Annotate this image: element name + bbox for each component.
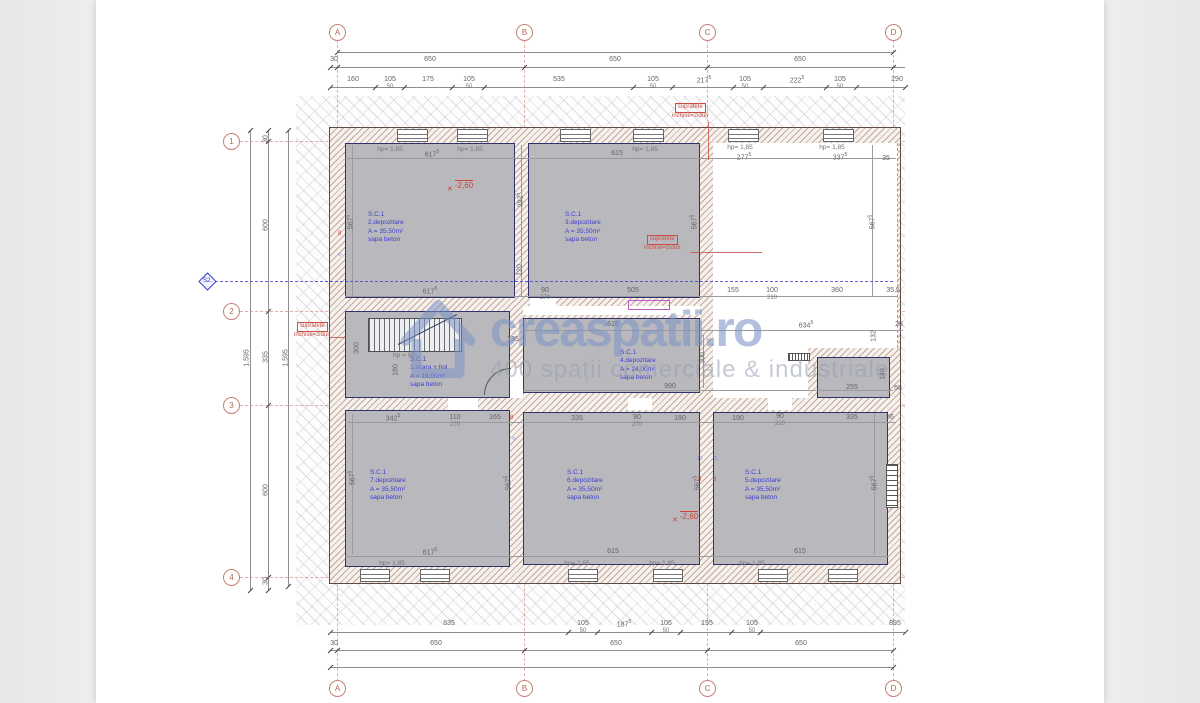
axis-marker-A: A xyxy=(329,680,346,697)
demolition-note: suprafeteinchise=ziduri xyxy=(672,103,709,120)
dim-label: 10550 xyxy=(739,76,751,91)
level-marker: ✕-2,60 xyxy=(672,512,698,521)
dim-line xyxy=(330,650,893,651)
dim-label: 650 xyxy=(610,640,622,648)
note-leader-line xyxy=(690,252,762,253)
demolition-note: suprafeteinchise=ziduri xyxy=(294,322,331,339)
dim-label: 165 xyxy=(489,414,501,422)
dim-label: 5675 xyxy=(503,476,512,490)
dim-label: 1,595 xyxy=(244,349,251,367)
dim-label: 10550 xyxy=(660,620,672,635)
dim-label: 10550 xyxy=(647,76,659,91)
dim-label: 990 xyxy=(664,383,676,391)
axis-marker-C: C xyxy=(699,680,716,697)
dim-label: 650 xyxy=(430,640,442,648)
window xyxy=(568,569,598,582)
dim-label: 650 xyxy=(794,56,806,64)
dim-line xyxy=(345,422,896,423)
parapet-height-label: hp= 1,85 xyxy=(457,146,482,153)
dim-line xyxy=(337,52,893,53)
open-area xyxy=(713,143,898,348)
parapet-height-label: hp= 1,85 xyxy=(649,560,674,567)
dim-label: 650 xyxy=(795,640,807,648)
wall-symbol: ○ xyxy=(338,252,342,258)
dim-label: 10550 xyxy=(384,76,396,91)
axis-marker-C: C xyxy=(699,24,716,41)
window xyxy=(823,129,854,142)
parapet-height-label: hp= 1,85 xyxy=(739,560,764,567)
window xyxy=(420,569,450,582)
dim-label: 110270 xyxy=(449,414,460,429)
dim-label: 5675 xyxy=(867,215,876,229)
dim-label: 5675 xyxy=(692,476,701,490)
dim-label: 2775 xyxy=(737,153,751,162)
axis-marker-2: 2 xyxy=(223,303,240,320)
dim-label: 3425 xyxy=(386,414,400,423)
dim-label: 28 xyxy=(895,321,903,329)
dim-label: 148 xyxy=(880,368,887,380)
parapet-height-label: hp= 1,85 xyxy=(632,146,657,153)
parapet-height-label: hp= 1,85 xyxy=(564,560,589,567)
dim-line xyxy=(330,67,905,68)
dim-label: 10550 xyxy=(834,76,846,91)
dim-label: 650 xyxy=(609,56,621,64)
dim-label: 5675 xyxy=(869,476,878,490)
axis-marker-4: 4 xyxy=(223,569,240,586)
dim-label: 650 xyxy=(424,56,436,64)
dim-label: 615 xyxy=(607,548,619,556)
dim-label: 132 xyxy=(871,330,878,342)
wall-detail-teeth xyxy=(788,353,810,361)
dim-label: 300 xyxy=(354,342,361,354)
dim-line xyxy=(330,87,905,88)
parapet-height-label: hp= 1,85 xyxy=(819,144,844,151)
dim-label: 90270 xyxy=(540,287,550,302)
dim-label: 190 xyxy=(732,415,744,423)
dim-label: 835 xyxy=(443,620,455,628)
note-leader-line xyxy=(708,122,709,160)
room-label: S.C.16.depozitareA = 35,50m²sapa beton xyxy=(567,469,603,503)
axis-marker-D: D xyxy=(885,24,902,41)
parapet-height-label: hp= 1,85 xyxy=(377,146,402,153)
note-leader-line xyxy=(330,337,346,338)
dim-label: 30 xyxy=(263,577,270,585)
dim-label: 5675 xyxy=(347,471,356,485)
dim-label: 2225 xyxy=(790,76,804,85)
dim-label: 120 xyxy=(517,264,524,276)
parapet-height-label: hp= 1,85 xyxy=(727,144,752,151)
dim-line xyxy=(523,390,893,391)
dim-label: 300 xyxy=(700,352,707,364)
dim-label: 5675 xyxy=(345,215,354,229)
parapet-height-label: hp= 1,85 xyxy=(379,560,404,567)
window xyxy=(758,569,788,582)
dim-label: 360 xyxy=(831,287,843,295)
axis-marker-3: 3 xyxy=(223,397,240,414)
axis-marker-B: B xyxy=(516,24,533,41)
dim-label: 135 xyxy=(507,336,519,344)
dim-label: 615 xyxy=(611,150,623,158)
dim-label: 3925 xyxy=(515,193,524,207)
dim-label: 2175 xyxy=(697,76,711,85)
dim-label: 6345 xyxy=(799,321,813,330)
axis-marker-A: A xyxy=(329,24,346,41)
window-right-wall xyxy=(886,464,898,508)
dim-label: 535 xyxy=(553,76,565,84)
room-label: S.C.11.scara + holA = 19,00m²sapa beton xyxy=(410,356,447,390)
room-label: S.C.17.depozitareA = 35,50m²sapa beton xyxy=(370,469,406,503)
demolition-note: suprafeteinchise=ziduri xyxy=(644,235,681,252)
room xyxy=(713,412,888,565)
axis-marker-B: B xyxy=(516,680,533,697)
window xyxy=(728,129,759,142)
window xyxy=(828,569,858,582)
dim-label: 155 xyxy=(727,287,739,295)
dim-label: 195 xyxy=(701,620,713,628)
door-gap xyxy=(628,398,652,410)
dim-label: 100210 xyxy=(766,287,778,302)
window xyxy=(560,129,591,142)
room-label: S.C.14.depozitareA = 24,00m²sapa beton xyxy=(620,349,656,383)
dim-label: 10550 xyxy=(577,620,589,635)
wall-symbol: □ xyxy=(713,456,717,462)
wall-symbol: 8 xyxy=(338,231,341,237)
axis-marker-D: D xyxy=(885,680,902,697)
dim-label: 35,5 xyxy=(886,287,900,295)
fixture-symbol xyxy=(628,300,670,310)
dim-label: 175 xyxy=(422,76,434,84)
door-gap xyxy=(510,368,523,398)
door-gap xyxy=(768,398,792,410)
dim-line xyxy=(330,632,905,633)
window xyxy=(633,129,664,142)
dim-line xyxy=(330,667,893,668)
dim-label: 615 xyxy=(794,548,806,556)
dim-label: 895 xyxy=(889,620,901,628)
dim-label: 160 xyxy=(347,76,359,84)
dim-label: 180 xyxy=(393,364,400,376)
dim-label: 6175 xyxy=(425,150,439,159)
level-marker: ✕-2,60 xyxy=(447,181,473,190)
dim-label: 35 xyxy=(882,155,890,163)
wall-symbol: 8 xyxy=(510,415,513,421)
dim-label: 6175 xyxy=(423,548,437,557)
dim-label: 255 xyxy=(846,384,858,392)
dim-line xyxy=(523,330,903,331)
dim-label: 3375 xyxy=(833,153,847,162)
room xyxy=(528,143,700,298)
dim-label: 290 xyxy=(891,76,903,84)
window xyxy=(457,129,488,142)
wall-symbol: ○ xyxy=(512,436,516,442)
wall-symbol: □ xyxy=(698,456,702,462)
dim-label: 600 xyxy=(263,219,270,231)
dim-label: 90270 xyxy=(632,414,642,429)
axis-marker-1: 1 xyxy=(223,133,240,150)
section-cut-line xyxy=(205,281,893,282)
section-marker-label: S2 xyxy=(203,278,210,284)
dim-label: 190 xyxy=(674,415,686,423)
dim-label: 58 xyxy=(894,385,902,393)
dim-label: 10550 xyxy=(463,76,475,91)
dim-label: 90210 xyxy=(775,413,785,428)
dim-label: 1,595 xyxy=(283,349,290,367)
dim-label: 30 xyxy=(330,640,338,648)
dim-label: 335 xyxy=(263,351,270,363)
window xyxy=(397,129,428,142)
room-label: S.C.13.depozitareA = 35,50m²sapa beton xyxy=(565,211,601,245)
room xyxy=(523,412,700,565)
window xyxy=(360,569,390,582)
dim-label: 335 xyxy=(846,414,858,422)
dim-label: 5675 xyxy=(689,215,698,229)
wall-symbol: 8 xyxy=(713,477,716,483)
dim-label: 30 xyxy=(263,135,270,143)
dim-label: 56 xyxy=(886,414,894,422)
window xyxy=(653,569,683,582)
room-label: S.C.12.depozitareA = 35,50m²sapa beton xyxy=(368,211,404,245)
screenshot-canvas: AABBCCDD1234 8○□□888○ 306506506501601055… xyxy=(0,0,1200,703)
dim-label: 6175 xyxy=(423,287,437,296)
dim-label: 10550 xyxy=(746,620,758,635)
dim-label: 30 xyxy=(330,56,338,64)
dim-label: 505 xyxy=(627,287,639,295)
door-gap xyxy=(448,398,478,410)
dim-label: 1875 xyxy=(617,620,631,629)
dim-label: 600 xyxy=(263,484,270,496)
room-label: S.C.15.depozitareA = 35,50m²sapa beton xyxy=(745,469,781,503)
dim-label: 335 xyxy=(571,415,583,423)
dim-label: 615 xyxy=(607,321,619,329)
